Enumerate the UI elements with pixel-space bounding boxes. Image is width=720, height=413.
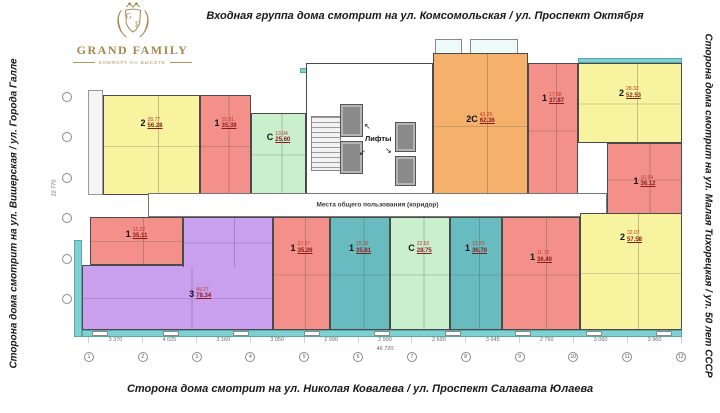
window-icon bbox=[586, 331, 602, 336]
floor-plan-page: Входная группа дома смотрит на ул. Комсо… bbox=[0, 0, 720, 413]
apartment-total-area: 25.60 bbox=[275, 137, 290, 143]
stairs bbox=[311, 116, 341, 171]
apartment-label: 1 15.3235.81 bbox=[349, 242, 371, 254]
apartment-unit-13: 1 13.7036.70 bbox=[450, 217, 502, 330]
axis-bubble bbox=[62, 173, 72, 183]
apartment-rooms: С bbox=[408, 243, 415, 253]
apartment-label: 1 11.7236.40 bbox=[530, 251, 552, 263]
apartment-total-area: 57.58 bbox=[627, 237, 642, 243]
logo-monogram-left: G bbox=[125, 12, 131, 21]
elevator-shaft bbox=[340, 141, 363, 174]
apartment-rooms: 2 bbox=[620, 232, 625, 242]
apartment-label: 2С 43.2562.36 bbox=[466, 113, 495, 125]
axis-bubble: 6 bbox=[353, 352, 363, 362]
dimension-value: 3 645 bbox=[465, 337, 519, 343]
elevator-arrow-icon: ↘ bbox=[385, 146, 392, 155]
apartment-total-area: 35.81 bbox=[356, 248, 371, 254]
apartment-total-area: 37.87 bbox=[549, 98, 564, 104]
axis-row: 1 2 3 4 5 6 7 8 9 10 11 12 bbox=[84, 352, 686, 362]
elevator-shaft bbox=[340, 104, 363, 137]
dimension-value: 2 990 bbox=[358, 337, 412, 343]
service-shaft bbox=[88, 90, 103, 195]
dimension-value: 2 990 bbox=[304, 337, 358, 343]
axis-bubble: 11 bbox=[622, 352, 632, 362]
corridor-label: Места общего пользования (коридор) bbox=[149, 202, 606, 209]
floor-plan: 2 28.7756.28 1 15.5135.39 С 13.0425.60 2… bbox=[88, 45, 682, 337]
apartment-label: С 22.9228.75 bbox=[408, 242, 432, 254]
apartment-unit-5: 1 17.8837.87 bbox=[528, 63, 578, 195]
axis-bubble: 12 bbox=[676, 352, 686, 362]
apartment-total-area: 35.11 bbox=[133, 233, 148, 239]
axis-bubble bbox=[62, 92, 72, 102]
apartment-label: 1 15.5135.39 bbox=[214, 118, 236, 130]
axis-bubble: 8 bbox=[461, 352, 471, 362]
dimension-value: 2 760 bbox=[519, 337, 573, 343]
apartment-unit-10: 1 17.2735.26 bbox=[273, 217, 330, 330]
apartment-label: 1 17.2735.26 bbox=[290, 242, 312, 254]
apartment-label: 1 13.7036.70 bbox=[465, 242, 487, 254]
apartment-rooms: 1 bbox=[126, 229, 131, 239]
axis-bubble: 2 bbox=[138, 352, 148, 362]
apartment-total-area: 36.40 bbox=[537, 257, 552, 263]
apartment-unit-14: 1 11.7236.40 bbox=[502, 217, 580, 330]
elevator-shaft bbox=[395, 156, 416, 186]
apartment-total-area: 62.36 bbox=[480, 118, 495, 124]
apartment-label: С 13.0425.60 bbox=[267, 132, 291, 144]
apartment-rooms: 2 bbox=[619, 88, 624, 98]
apartment-unit-1: 2 28.7756.28 bbox=[103, 95, 200, 195]
apartment-unit-9: 3 49.2778.34 bbox=[82, 265, 273, 330]
elevator-arrow-icon: ↙ bbox=[359, 148, 366, 157]
dimension-value: 3 160 bbox=[196, 337, 250, 343]
apartment-label: 1 15.2235.11 bbox=[126, 228, 148, 240]
window-icon bbox=[92, 331, 108, 336]
apartment-total-area: 56.28 bbox=[148, 123, 163, 129]
apartment-total-area: 52.53 bbox=[626, 93, 641, 99]
apartment-rooms: 2 bbox=[140, 118, 145, 128]
elevator-shaft bbox=[395, 122, 416, 152]
apartment-label: 3 49.2778.34 bbox=[189, 288, 211, 300]
apartment-rooms: 2С bbox=[466, 114, 478, 124]
axis-bubble bbox=[62, 254, 72, 264]
window-icon bbox=[656, 331, 672, 336]
elevators-label: Лифты bbox=[365, 134, 391, 143]
axis-bubble: 1 bbox=[84, 352, 94, 362]
apartment-total-area: 35.26 bbox=[298, 248, 313, 254]
apartment-rooms: 1 bbox=[214, 118, 219, 128]
axis-bubble: 9 bbox=[515, 352, 525, 362]
window-icon bbox=[374, 331, 390, 336]
apartment-rooms: 3 bbox=[189, 289, 194, 299]
apartment-total-area: 35.39 bbox=[222, 123, 237, 129]
axis-bubble bbox=[62, 294, 72, 304]
apartment-unit-8: 1 15.2235.11 bbox=[90, 217, 183, 265]
apartment-unit-15: 2 32.0757.58 bbox=[580, 213, 682, 330]
elevator-arrow-icon: ↖ bbox=[364, 122, 371, 131]
corridor: Места общего пользования (коридор) bbox=[148, 193, 607, 217]
bottom-windows bbox=[92, 331, 672, 336]
apartment-rooms: 1 bbox=[465, 243, 470, 253]
dimension-value: 3 370 bbox=[88, 337, 142, 343]
apartment-unit-2: 1 15.5135.39 bbox=[200, 95, 251, 195]
apartment-unit-7: 1 16.6436.12 bbox=[607, 143, 682, 215]
axis-bubble bbox=[62, 132, 72, 142]
apartment-rooms: 1 bbox=[290, 243, 295, 253]
dimension-value: 2 690 bbox=[411, 337, 465, 343]
logo-monogram-right: F bbox=[134, 20, 139, 29]
window-icon bbox=[445, 331, 461, 336]
apartment-unit-9-extension bbox=[183, 217, 273, 267]
apartment-rooms: С bbox=[267, 132, 274, 142]
title-left: Сторона дома смотрит на ул. Вишерская / … bbox=[9, 14, 20, 413]
logo-crest-icon: G F bbox=[107, 2, 159, 42]
axis-bubble: 5 bbox=[299, 352, 309, 362]
dimension-value: 3 960 bbox=[627, 337, 682, 343]
axis-bubble: 7 bbox=[407, 352, 417, 362]
apartment-unit-11: 1 15.3235.81 bbox=[330, 217, 390, 330]
apartment-total-area: 28.75 bbox=[417, 248, 432, 254]
apartment-unit-3: С 13.0425.60 bbox=[251, 113, 306, 195]
apartment-total-area: 78.34 bbox=[196, 293, 211, 299]
window-icon bbox=[304, 331, 320, 336]
apartment-label: 1 17.8837.87 bbox=[542, 93, 564, 105]
apartment-label: 1 16.6436.12 bbox=[633, 176, 655, 188]
apartment-unit-12: С 22.9228.75 bbox=[390, 217, 450, 330]
axis-bubble bbox=[62, 213, 72, 223]
building-core: Лифты ↖ ↘ ↙ bbox=[306, 63, 433, 195]
apartment-rooms: 1 bbox=[633, 176, 638, 186]
apartment-label: 2 28.7756.28 bbox=[140, 118, 162, 130]
apartment-total-area: 36.70 bbox=[472, 248, 487, 254]
dimension-row: 3 370 4 025 3 160 3 050 2 990 2 990 2 69… bbox=[88, 337, 682, 343]
apartment-rooms: 1 bbox=[530, 252, 535, 262]
title-right: Сторона дома смотрит на ул. Малая Тихоре… bbox=[703, 6, 714, 406]
window-icon bbox=[515, 331, 531, 336]
left-axis-column bbox=[62, 92, 72, 304]
apartment-rooms: 1 bbox=[349, 243, 354, 253]
apartment-unit-6: 2 28.3252.53 bbox=[578, 63, 682, 143]
axis-bubble: 4 bbox=[245, 352, 255, 362]
apartment-label: 2 28.3252.53 bbox=[619, 87, 641, 99]
title-bottom: Сторона дома смотрит на ул. Николая Кова… bbox=[40, 383, 680, 395]
apartment-unit-4: 2С 43.2562.36 bbox=[433, 53, 528, 195]
apartment-total-area: 36.12 bbox=[641, 181, 656, 187]
left-dimension: 22 770 bbox=[51, 180, 57, 197]
dimension-value: 3 050 bbox=[250, 337, 304, 343]
axis-bubble: 3 bbox=[192, 352, 202, 362]
title-top: Входная группа дома смотрит на ул. Комсо… bbox=[150, 10, 700, 22]
dimension-value: 3 060 bbox=[573, 337, 627, 343]
apartment-rooms: 1 bbox=[542, 93, 547, 103]
axis-bubble: 10 bbox=[568, 352, 578, 362]
apartment-label: 2 32.0757.58 bbox=[620, 231, 642, 243]
window-icon bbox=[233, 331, 249, 336]
window-icon bbox=[163, 331, 179, 336]
dimension-value: 4 025 bbox=[142, 337, 196, 343]
left-wall-strip bbox=[74, 240, 82, 337]
